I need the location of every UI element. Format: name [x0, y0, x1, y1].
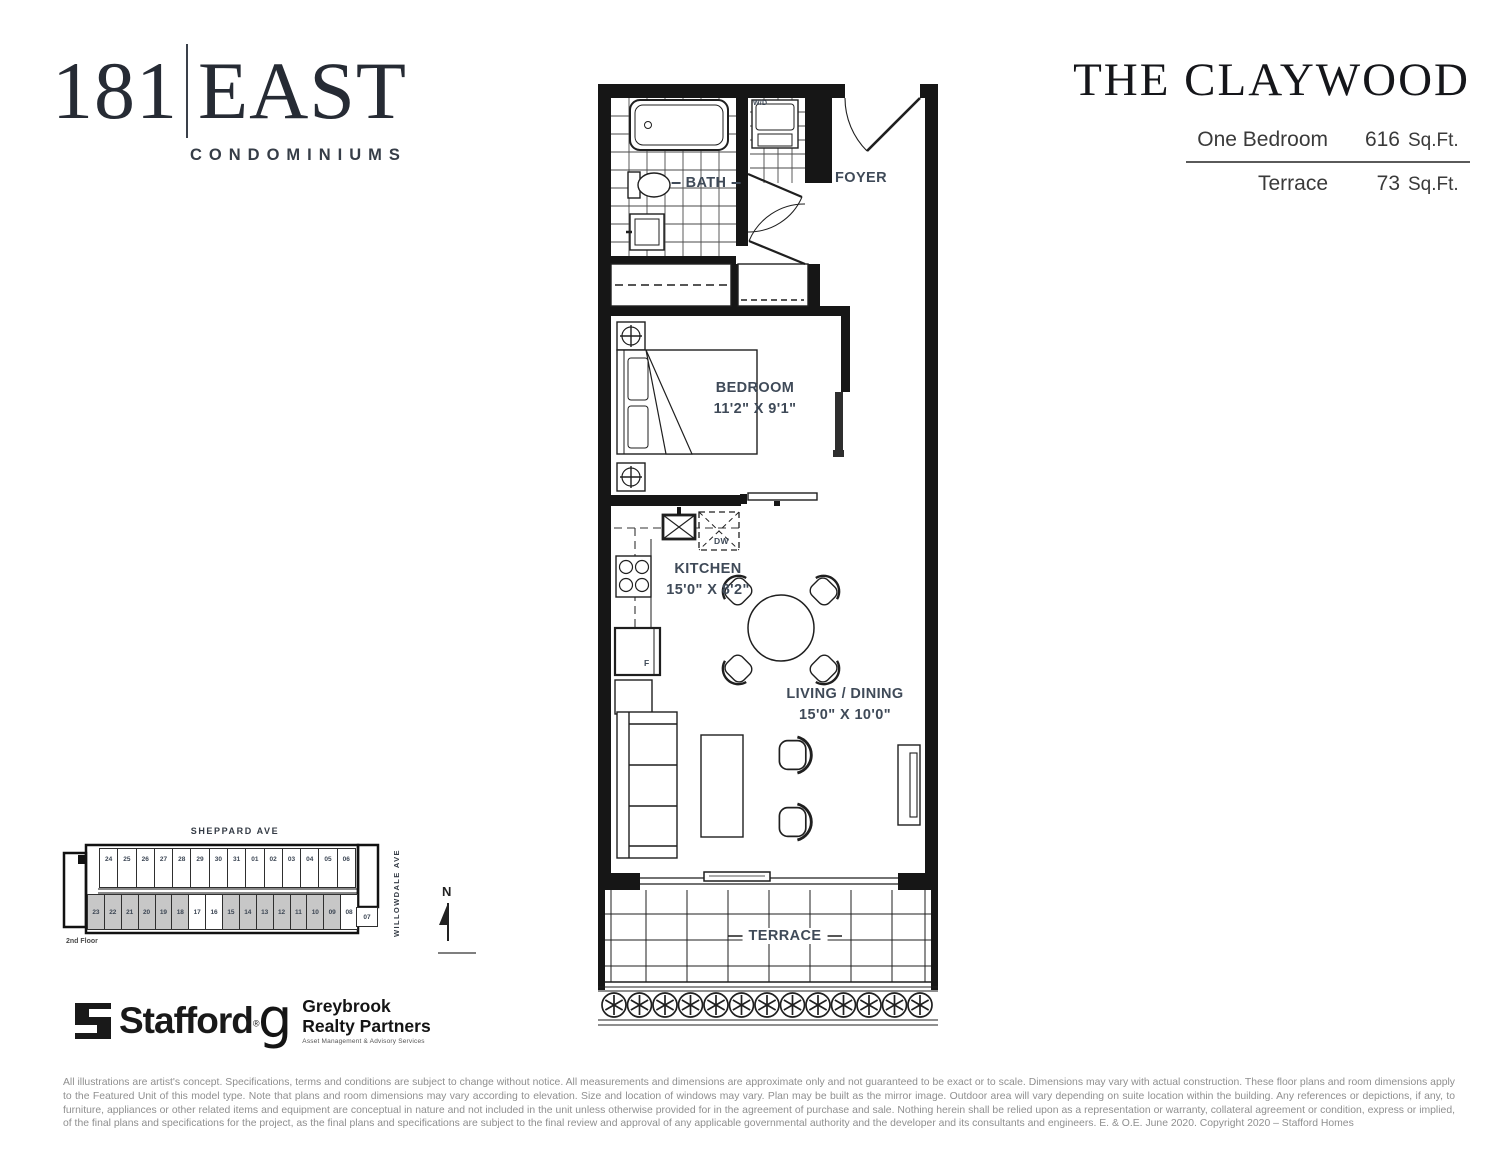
keyplan-unit-19: 19 [155, 894, 173, 930]
keyplan-unit-12: 12 [273, 894, 291, 930]
greybrook-name-line1: Greybrook [302, 996, 430, 1016]
sofa [617, 712, 677, 858]
entry-door [845, 98, 920, 151]
terrace-planters [602, 993, 932, 1017]
disclaimer-text: All illustrations are artist's concept. … [63, 1076, 1455, 1131]
kitchen-sink [663, 507, 695, 539]
stafford-name: Stafford [119, 1000, 253, 1041]
keyplan-unit-29: 29 [190, 848, 209, 888]
street-label-willowdale: WILLOWDALE AVE [392, 843, 401, 943]
bedroom-label: BEDROOM [716, 380, 795, 396]
keyplan-unit-30: 30 [209, 848, 228, 888]
keyplan-unit-14: 14 [239, 894, 257, 930]
keyplan-unit-25: 25 [117, 848, 136, 888]
brand-logo: 181 EAST CONDOMINIUMS [52, 44, 407, 165]
greybrook-g-icon: g [258, 996, 292, 1042]
foyer-closet [738, 264, 808, 306]
keyplan-unit-11: 11 [290, 894, 308, 930]
greybrook-logo: g Greybrook Realty Partners Asset Manage… [258, 996, 431, 1045]
floor-plan-page: { "brand": { "number": "181", "name": "E… [0, 0, 1496, 1156]
keyplan-unit-10: 10 [306, 894, 324, 930]
nightstand-bottom [617, 463, 645, 491]
stafford-mark-icon [75, 1003, 111, 1039]
brand-number: 181 [52, 50, 178, 132]
terrace-sliding-doors [640, 872, 898, 884]
spec-row-bedroom: One Bedroom 616 Sq.Ft. [1186, 119, 1470, 161]
keyplan-unit-27: 27 [154, 848, 173, 888]
kitchen-label: KITCHEN [674, 561, 741, 577]
spec-value: 616 [1350, 128, 1408, 152]
bath-sink [626, 214, 664, 250]
fridge [615, 628, 660, 675]
keyplan-unit-01: 01 [245, 848, 264, 888]
north-arrow-icon [438, 899, 478, 959]
keyplan-unit-06: 06 [337, 848, 356, 888]
keyplan-unit-15: 15 [222, 894, 240, 930]
brand-subtitle: CONDOMINIUMS [52, 146, 407, 165]
keyplan-unit-22: 22 [104, 894, 122, 930]
keyplan-unit-28: 28 [172, 848, 191, 888]
wd-label: W/D [753, 100, 767, 107]
armchairs [779, 737, 811, 840]
keyplan-unit-24: 24 [99, 848, 118, 888]
keyplan-unit-13: 13 [256, 894, 274, 930]
floor-note: 2nd Floor [66, 938, 98, 945]
bedroom-sliding-door [833, 392, 844, 457]
bathtub [630, 100, 728, 150]
unit-spec-header: THE CLAYWOOD One Bedroom 616 Sq.Ft. Terr… [1060, 56, 1470, 205]
keyplan-unit-20: 20 [138, 894, 156, 930]
keyplan-unit-17: 17 [188, 894, 206, 930]
keyplan-unit-26: 26 [136, 848, 155, 888]
cooktop [616, 556, 651, 597]
keyplan-unit-31: 31 [227, 848, 246, 888]
keyplan-unit-02: 02 [264, 848, 283, 888]
keyplan-unit-04: 04 [300, 848, 319, 888]
brand-divider-bar [186, 44, 188, 138]
kitchen-dims: 15'0" X 8'2" [666, 582, 750, 598]
spec-table: One Bedroom 616 Sq.Ft. Terrace 73 Sq.Ft. [1186, 119, 1470, 205]
nightstand-top [617, 322, 645, 350]
spec-value: 73 [1350, 172, 1408, 196]
spec-unit: Sq.Ft. [1408, 174, 1470, 196]
dining-table [748, 595, 814, 661]
keyplan-unit-16: 16 [205, 894, 223, 930]
keyplan-bottom-row: 23222120191817161514131211100908 [88, 894, 358, 930]
washer-dryer [752, 100, 798, 148]
bedroom-dims: 11'2" X 9'1" [714, 401, 797, 417]
foyer-label: FOYER [835, 170, 887, 186]
spec-unit: Sq.Ft. [1408, 130, 1470, 152]
keyplan: 2425262728293031010203040506 23222120191… [62, 843, 382, 943]
fridge-label: F [644, 658, 650, 668]
keyplan-unit-05: 05 [318, 848, 337, 888]
plan-title: THE CLAYWOOD [1060, 56, 1470, 105]
toilet [628, 172, 670, 198]
keyplan-unit-09: 09 [323, 894, 341, 930]
foyer-closet-door [749, 204, 805, 264]
street-label-sheppard: SHEPPARD AVE [150, 826, 320, 836]
keyplan-unit-03: 03 [282, 848, 301, 888]
dishwasher-label: DW [714, 536, 729, 546]
greybrook-tagline: Asset Management & Advisory Services [302, 1038, 430, 1045]
floor-plan: W/D BATH FOYER BEDROOM 11'2" X 9'1" DW K… [598, 84, 938, 1046]
keyplan-unit-07: 07 [356, 907, 378, 927]
keyplan-top-row: 2425262728293031010203040506 [100, 848, 356, 888]
spec-label: Terrace [1186, 172, 1350, 196]
bedroom-closet [611, 264, 731, 306]
terrace-label: TERRACE [743, 928, 828, 944]
living-label: LIVING / DINING [786, 686, 903, 702]
floor-plan-drawing [598, 84, 938, 1046]
spec-label: One Bedroom [1186, 128, 1350, 152]
north-indicator: N [438, 884, 478, 964]
tv-console [898, 745, 920, 825]
spec-row-terrace: Terrace 73 Sq.Ft. [1186, 161, 1470, 205]
brand-name: EAST [198, 50, 407, 132]
coffee-table [701, 735, 743, 837]
keyplan-unit-18: 18 [171, 894, 189, 930]
bath-label: BATH [672, 175, 741, 191]
keyplan-unit-21: 21 [121, 894, 139, 930]
greybrook-name-line2: Realty Partners [302, 1016, 430, 1036]
stafford-logo: Stafford® [75, 1000, 259, 1042]
wd-closet-door [748, 174, 802, 232]
kitchen-cabinet [615, 680, 652, 714]
north-label: N [442, 884, 478, 899]
keyplan-unit-23: 23 [87, 894, 105, 930]
kitchen-sliding-door [740, 493, 817, 506]
living-dims: 15'0" X 10'0" [799, 707, 891, 723]
